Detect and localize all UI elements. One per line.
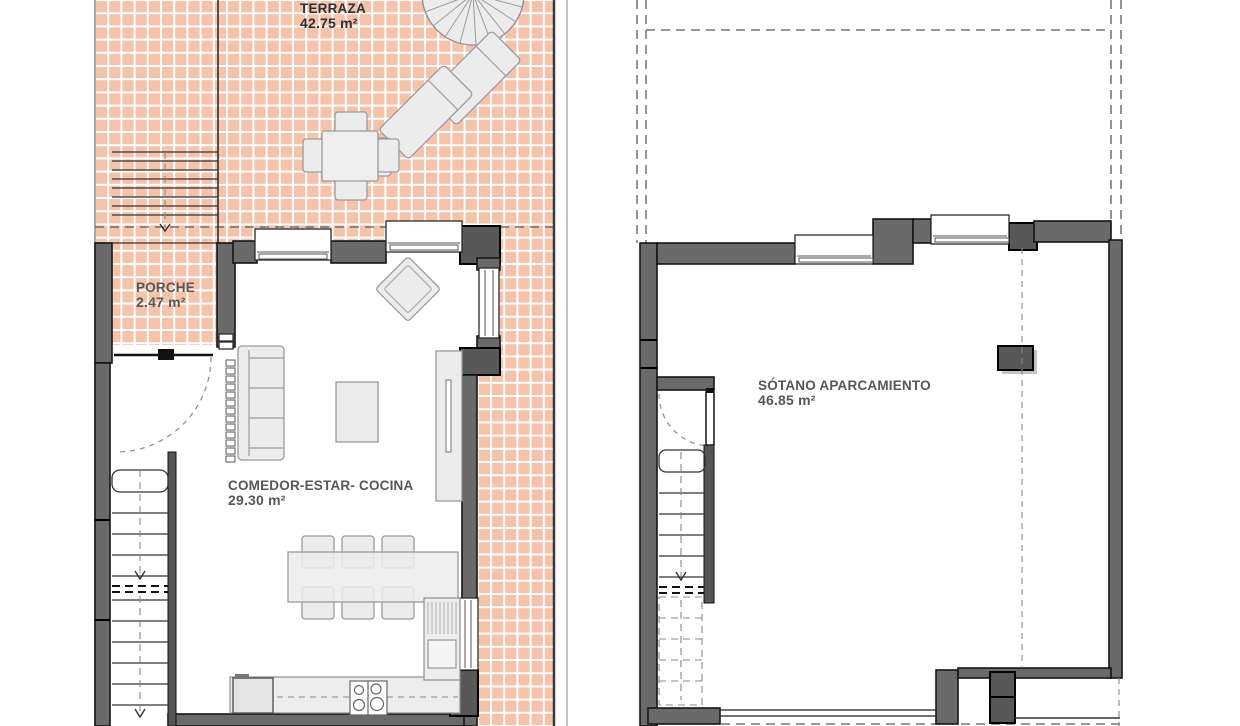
room-area: 29.30 m²	[228, 493, 413, 507]
room-area: 2.47 m²	[136, 295, 195, 309]
sofa	[238, 346, 284, 460]
room-area: 42.75 m²	[300, 16, 366, 30]
window	[795, 235, 873, 264]
basement-staircase	[659, 445, 714, 705]
room-label-terraza: TERRAZA 42.75 m²	[300, 2, 366, 30]
ground-floor-plan	[95, 0, 567, 726]
room-name: COMEDOR-ESTAR- COCINA	[228, 478, 413, 493]
cooktop	[350, 681, 387, 715]
armchair	[375, 256, 440, 321]
plot-boundary-right	[637, 0, 1121, 724]
room-name: TERRAZA	[300, 1, 366, 16]
coffee-table	[336, 382, 378, 442]
window	[255, 229, 331, 260]
tv-unit	[436, 351, 462, 501]
basement-door	[657, 377, 714, 450]
room-name: SÓTANO APARCAMIENTO	[758, 378, 931, 393]
floorplan-sheet: TERRAZA 42.75 m² PORCHE 2.47 m² COMEDOR-…	[0, 0, 1240, 726]
interior-staircase	[112, 452, 176, 726]
room-area: 46.85 m²	[758, 393, 931, 407]
entry-door	[114, 349, 213, 452]
room-label-sotano: SÓTANO APARCAMIENTO 46.85 m²	[758, 379, 931, 407]
radiator	[226, 360, 235, 462]
garage-door-opening	[720, 710, 936, 716]
basement-plan	[637, 0, 1122, 726]
room-label-comedor: COMEDOR-ESTAR- COCINA 29.30 m²	[228, 479, 413, 507]
window	[479, 268, 499, 338]
rear-door	[459, 598, 478, 670]
structural-column	[998, 346, 1037, 374]
room-label-porche: PORCHE 2.47 m²	[136, 281, 195, 309]
window	[931, 215, 1009, 244]
floorplan-drawing	[0, 0, 1240, 726]
window	[386, 221, 462, 252]
fridge	[233, 674, 273, 713]
room-name: PORCHE	[136, 280, 195, 295]
